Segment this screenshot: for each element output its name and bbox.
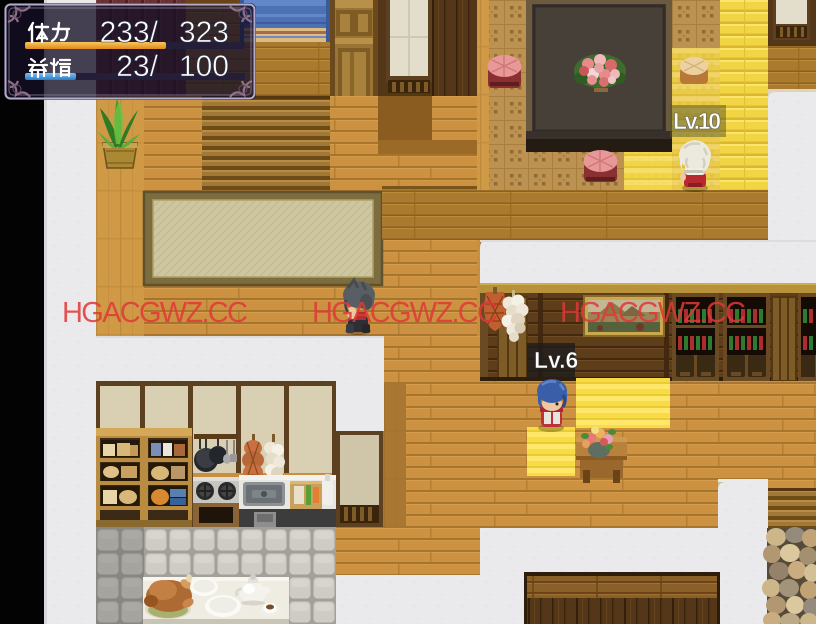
svg-text:HGACGWZ.CC: HGACGWZ.CC [62,297,248,329]
svg-text:23/: 23/ [116,50,158,83]
svg-text:Lv.10: Lv.10 [673,108,721,134]
svg-text:HGACGWZ.CC: HGACGWZ.CC [560,297,746,329]
svg-text:100: 100 [179,50,229,83]
svg-text:323: 323 [179,16,229,49]
svg-text:Lv.6: Lv.6 [534,347,578,373]
svg-text:233/: 233/ [100,16,159,49]
svg-text:HGACGWZ.CC: HGACGWZ.CC [312,297,498,329]
